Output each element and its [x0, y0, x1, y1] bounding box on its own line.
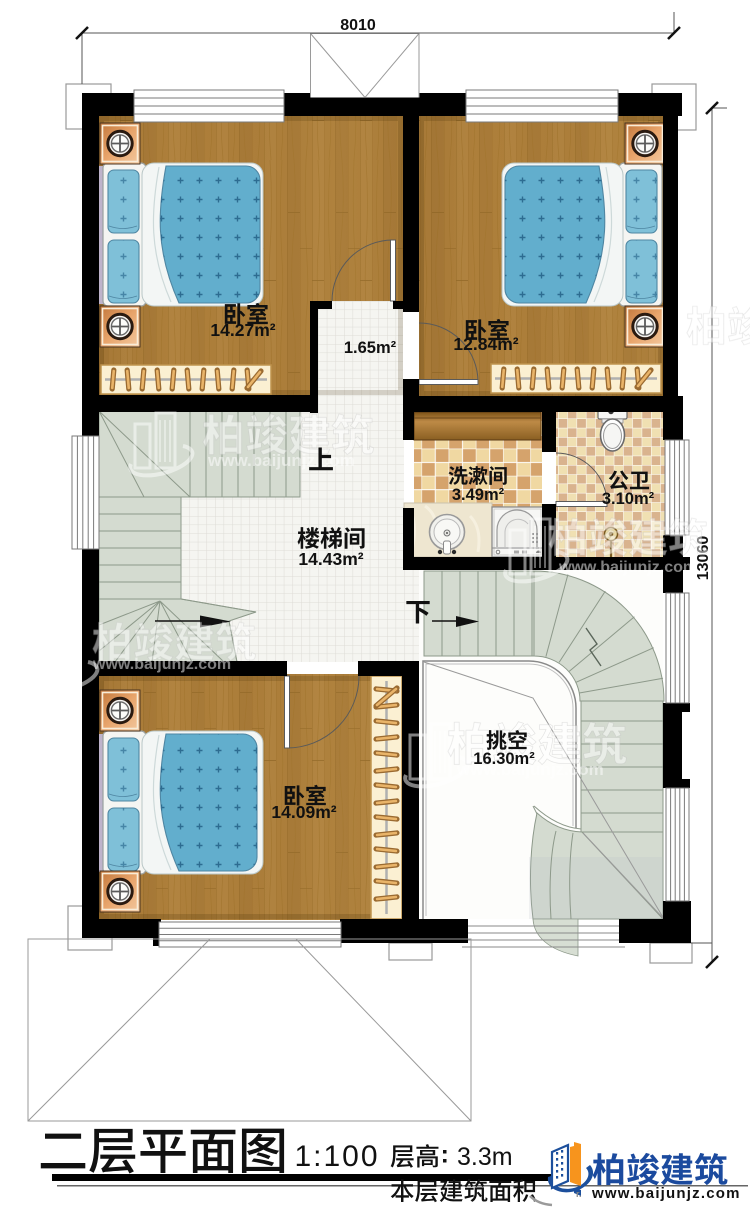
svg-text:14.09m²: 14.09m²	[271, 802, 336, 822]
svg-text:8010: 8010	[340, 17, 376, 34]
svg-text:1:100: 1:100	[294, 1140, 379, 1173]
svg-text:1.65m²: 1.65m²	[344, 339, 397, 357]
svg-text:14.43m²: 14.43m²	[298, 549, 363, 569]
svg-text:14.27m²: 14.27m²	[210, 320, 275, 340]
svg-text:16.30m²: 16.30m²	[473, 750, 535, 768]
svg-text:3.49m²: 3.49m²	[452, 486, 505, 504]
svg-text:r.: r.	[576, 1189, 582, 1199]
svg-text:www.baijunjz.com: www.baijunjz.com	[558, 559, 697, 576]
svg-text:3.3m: 3.3m	[457, 1143, 513, 1171]
svg-text:www.baijunjz.com: www.baijunjz.com	[591, 1185, 741, 1202]
svg-text:www.baijunjz.com: www.baijunjz.com	[92, 656, 231, 673]
svg-text:3.10m²: 3.10m²	[602, 490, 655, 508]
svg-text:12.84m²: 12.84m²	[453, 334, 518, 354]
